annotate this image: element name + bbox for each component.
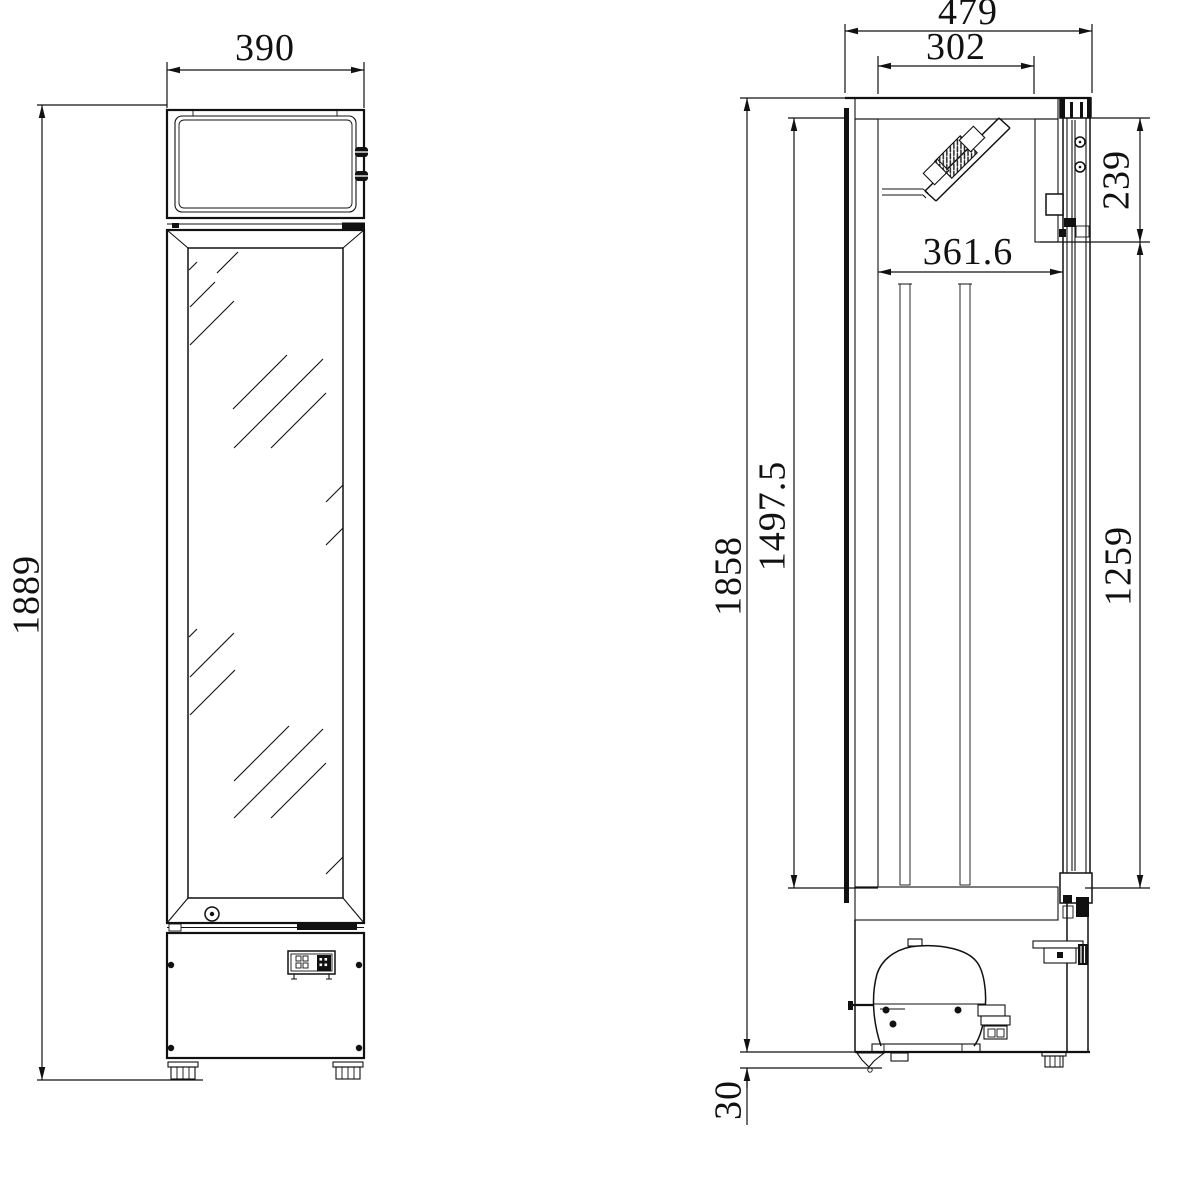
bottom-trim-band — [167, 924, 364, 931]
front-feet — [168, 1062, 363, 1079]
shelf-support-strips — [898, 284, 972, 885]
dim-canopy-height-label: 239 — [1096, 150, 1138, 210]
panel-screw — [168, 1045, 174, 1051]
dim-door-height-label: 1497.5 — [752, 461, 794, 572]
back-panel — [844, 108, 849, 903]
door-outline — [167, 230, 364, 923]
door-bottom-rail — [1060, 873, 1092, 918]
dim-top-opening: 302 — [878, 26, 1034, 94]
panel-screw — [356, 1045, 362, 1051]
technical-drawing: 390 1889 — [0, 0, 1200, 1200]
panel-screw — [168, 962, 174, 968]
dim-front-width-label: 390 — [235, 27, 295, 69]
side-foot — [1042, 1052, 1066, 1067]
dim-interior-height: 1259 — [1085, 242, 1150, 888]
insulation-walls — [855, 98, 1058, 920]
dim-overall-height-label: 1889 — [6, 555, 48, 635]
temperature-controller — [288, 951, 335, 979]
compressor-rail — [872, 1044, 980, 1052]
dim-front-width: 390 — [167, 27, 364, 108]
drain-spout — [857, 1053, 908, 1072]
dim-canopy-height: 239 — [1040, 118, 1150, 242]
front-top-insulation — [1035, 119, 1058, 242]
light-box-outline — [167, 110, 364, 218]
bottom-hinge-cover — [297, 924, 357, 930]
door-section — [1046, 98, 1092, 918]
door-bevels — [167, 230, 364, 923]
glass-reflections — [189, 252, 343, 874]
controller-display — [317, 955, 331, 971]
dim-top-opening-label: 302 — [926, 26, 986, 68]
drawing-sheet: 390 1889 — [0, 0, 1200, 1200]
bottom-hinge-bracket — [1033, 941, 1088, 965]
compressor-terminal-box — [978, 1005, 1005, 1016]
glass-door — [167, 230, 364, 923]
panel-screw — [356, 962, 362, 968]
machine-compartment — [848, 903, 1090, 1072]
dim-interior-height-label: 1259 — [1098, 526, 1140, 606]
thermostat-knobs — [355, 147, 368, 181]
dim-base-clearance: 30 — [708, 1068, 882, 1125]
top-hinge-block — [1046, 194, 1063, 215]
back-insulation — [855, 119, 878, 887]
top-insulation — [855, 98, 1058, 119]
light-box-frame-outer — [175, 116, 356, 212]
base-panel — [167, 933, 364, 1058]
compressor — [848, 939, 1010, 1052]
top-trim-band — [167, 223, 365, 230]
light-box — [167, 110, 368, 218]
side-view: 479 302 361.6 239 1259 1497 — [708, 0, 1150, 1125]
dim-cabinet-height: 1858 — [708, 98, 855, 1052]
front-view: 390 1889 — [6, 27, 368, 1080]
evaporator-fan-assembly — [882, 118, 1010, 201]
light-box-frame-inner — [179, 120, 352, 208]
floor-insulation — [855, 887, 1058, 920]
dim-base-clearance-label: 30 — [708, 1080, 750, 1120]
dim-cabinet-height-label: 1858 — [708, 536, 750, 616]
glass-pane — [188, 248, 343, 898]
top-hinge-cover — [342, 223, 365, 230]
dim-door-height: 1497.5 — [752, 118, 878, 888]
dim-interior-depth-label: 361.6 — [923, 231, 1014, 273]
